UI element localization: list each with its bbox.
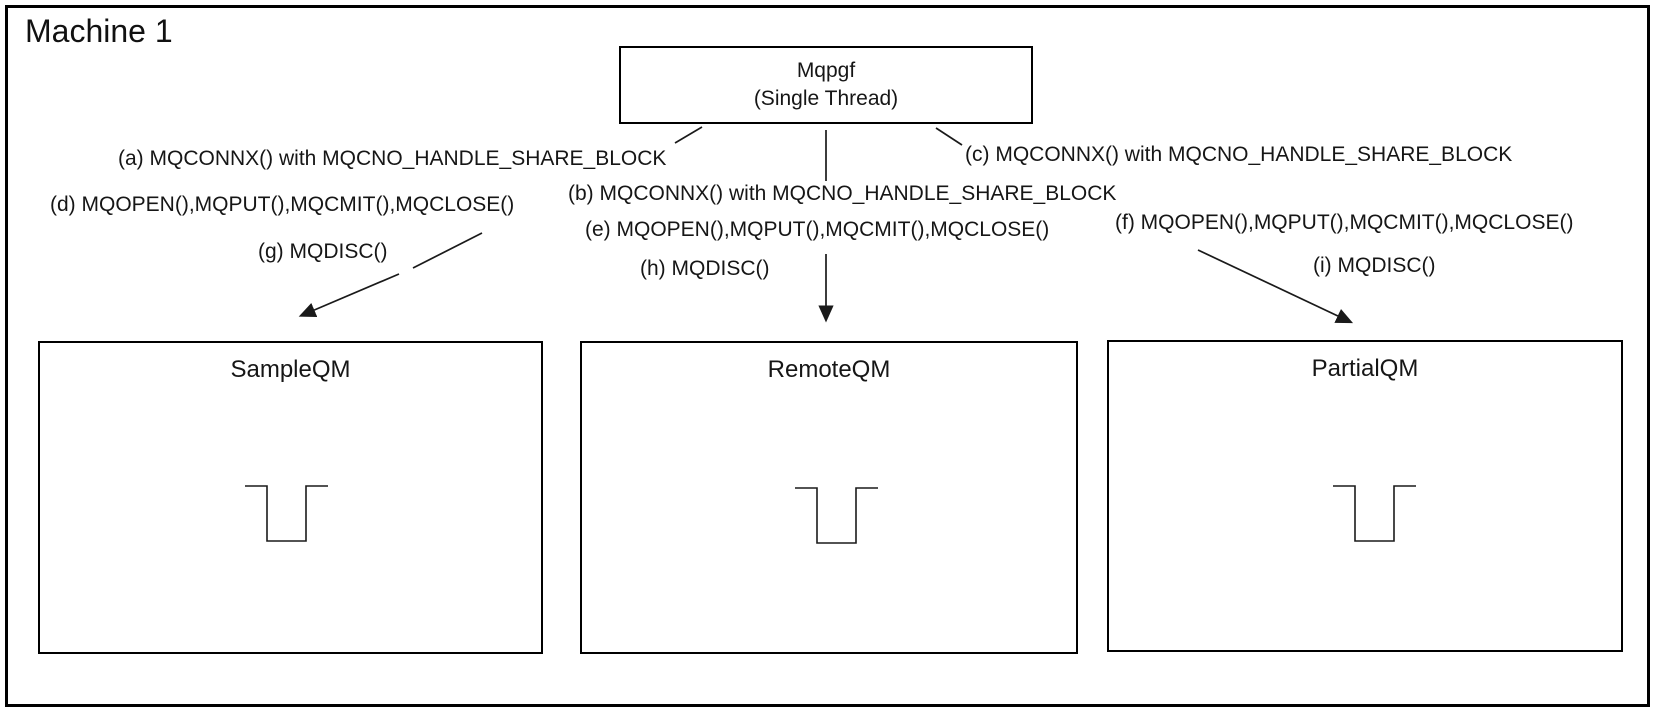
call-label-a: (a) MQCONNX() with MQCNO_HANDLE_SHARE_BL…	[118, 146, 666, 171]
producer-name: Mqpgf	[797, 57, 855, 85]
queue-icon	[244, 484, 329, 543]
machine-title: Machine 1	[25, 12, 173, 50]
diagram-canvas: Machine 1 Mqpgf (Single Thread) (a) MQCO…	[0, 0, 1658, 716]
qm-title-remoteqm: RemoteQM	[582, 343, 1076, 385]
call-label-i: (i) MQDISC()	[1313, 253, 1435, 278]
queue-icon	[1332, 484, 1417, 543]
call-label-d: (d) MQOPEN(),MQPUT(),MQCMIT(),MQCLOSE()	[50, 192, 514, 217]
call-label-g: (g) MQDISC()	[258, 239, 388, 264]
call-label-f: (f) MQOPEN(),MQPUT(),MQCMIT(),MQCLOSE()	[1115, 210, 1573, 235]
call-label-h: (h) MQDISC()	[640, 256, 770, 281]
producer-box: Mqpgf (Single Thread)	[619, 46, 1033, 124]
call-label-c: (c) MQCONNX() with MQCNO_HANDLE_SHARE_BL…	[965, 142, 1512, 167]
queue-icon	[794, 486, 879, 545]
qm-title-partialqm: PartialQM	[1109, 342, 1621, 384]
qm-box-sampleqm: SampleQM	[38, 341, 543, 654]
producer-thread-note: (Single Thread)	[754, 85, 898, 113]
qm-box-partialqm: PartialQM	[1107, 340, 1623, 652]
qm-box-remoteqm: RemoteQM	[580, 341, 1078, 654]
call-label-e: (e) MQOPEN(),MQPUT(),MQCMIT(),MQCLOSE()	[585, 217, 1049, 242]
call-label-b: (b) MQCONNX() with MQCNO_HANDLE_SHARE_BL…	[568, 181, 1116, 206]
qm-title-sampleqm: SampleQM	[40, 343, 541, 385]
